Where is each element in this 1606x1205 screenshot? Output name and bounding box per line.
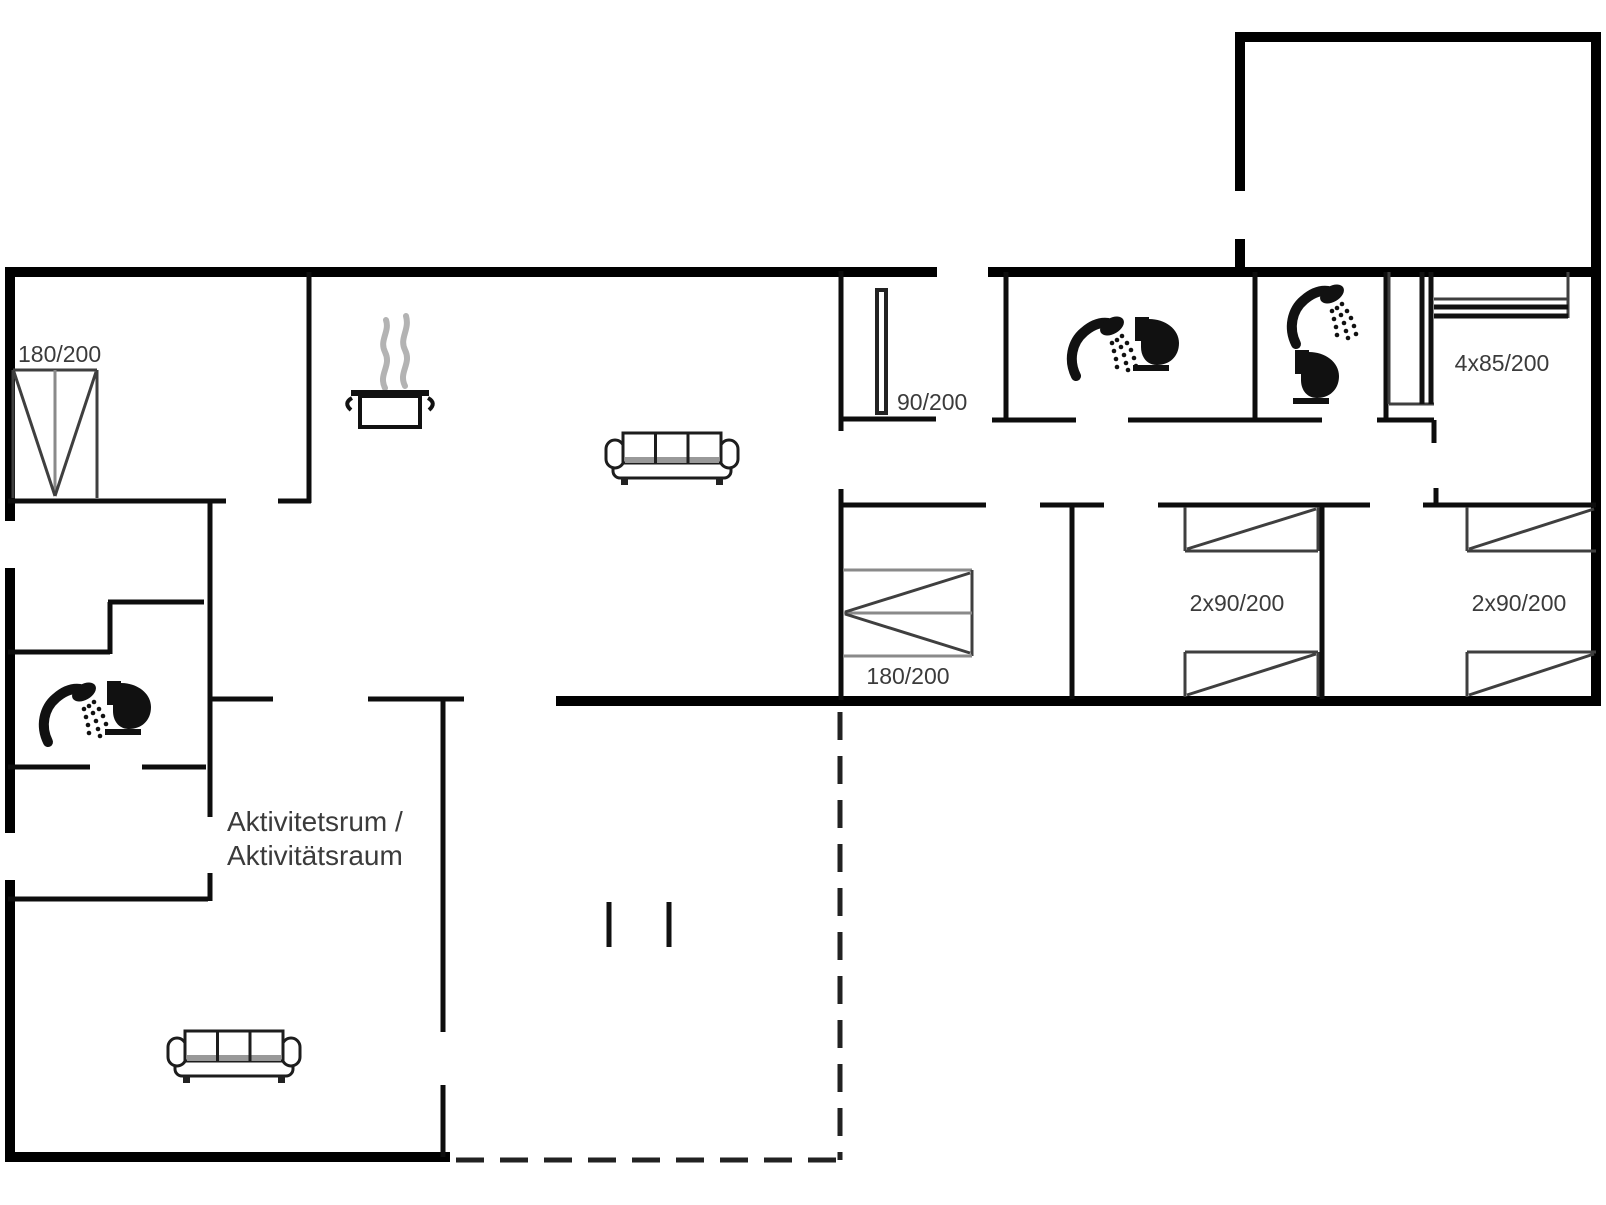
single-bed-icon xyxy=(1185,652,1318,697)
double-bed-icon xyxy=(843,570,972,656)
bed-size-label: 180/200 xyxy=(18,341,101,367)
shower-icon xyxy=(1072,313,1138,376)
closet-size-label: 90/200 xyxy=(897,389,967,415)
single-bed-icon xyxy=(1467,507,1596,551)
dashed-terrace-outline xyxy=(456,712,842,1160)
double-bed-icon xyxy=(13,370,97,498)
room-name-label: Aktivitätsraum xyxy=(227,840,403,871)
room-name-label: Aktivitetsrum / xyxy=(227,806,403,837)
toilet-icon xyxy=(1133,317,1179,371)
floor-plan-drawing: 180/200 90/200 180/200 2x90/200 2x90/200… xyxy=(0,0,1606,1205)
shower-icon xyxy=(1292,281,1358,344)
floor-plan-page: 180/200 90/200 180/200 2x90/200 2x90/200… xyxy=(0,0,1606,1205)
single-bed-icon xyxy=(1467,652,1596,697)
post-marks xyxy=(609,902,669,947)
exterior-walls xyxy=(10,37,1596,1157)
bed-size-label: 2x90/200 xyxy=(1190,590,1285,616)
wardrobe-icon xyxy=(875,289,888,414)
annex-walls xyxy=(1240,37,1592,271)
bed-size-label: 180/200 xyxy=(866,663,949,689)
shower-icon xyxy=(44,679,110,742)
toilet-icon xyxy=(1293,350,1339,404)
sofa-icon xyxy=(168,1031,300,1083)
single-bed-icon xyxy=(1185,507,1318,551)
toilet-icon xyxy=(105,681,151,735)
sofa-icon xyxy=(606,433,738,485)
bed-size-label: 2x90/200 xyxy=(1472,590,1567,616)
interior-walls xyxy=(8,271,1596,1157)
cooking-pot-icon xyxy=(347,316,433,427)
bunk-bed-icon xyxy=(1389,272,1568,404)
bed-size-label: 4x85/200 xyxy=(1455,350,1550,376)
